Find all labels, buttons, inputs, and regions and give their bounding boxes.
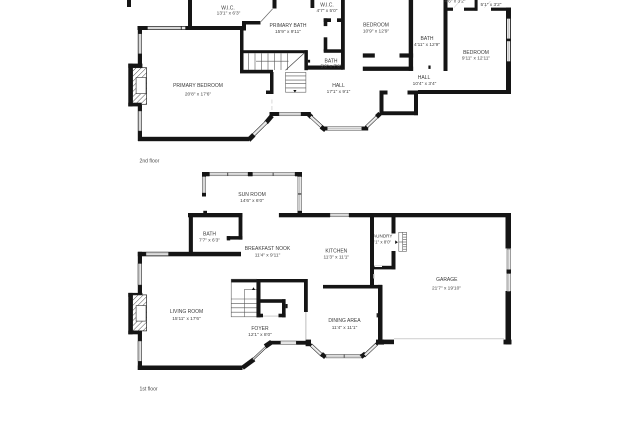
svg-text:HALL: HALL xyxy=(332,83,345,89)
svg-text:5'1" x 3'2": 5'1" x 3'2" xyxy=(481,2,502,8)
svg-text:9'11" x 12'11": 9'11" x 12'11" xyxy=(462,56,491,62)
svg-text:SUN ROOM: SUN ROOM xyxy=(238,192,266,198)
svg-text:GARAGE: GARAGE xyxy=(436,277,458,283)
svg-text:15'9" x 9'11": 15'9" x 9'11" xyxy=(275,29,301,35)
svg-text:LIVING ROOM: LIVING ROOM xyxy=(170,309,203,315)
svg-text:15'11" x 17'6": 15'11" x 17'6" xyxy=(172,316,201,322)
svg-text:17'1" x 9'1": 17'1" x 9'1" xyxy=(327,89,351,95)
svg-text:BREAKFAST NOOK: BREAKFAST NOOK xyxy=(245,246,291,252)
svg-text:BATH: BATH xyxy=(203,231,216,237)
svg-text:10'4" x 3'4": 10'4" x 3'4" xyxy=(413,81,437,87)
svg-text:KITCHEN: KITCHEN xyxy=(325,248,347,254)
svg-text:1st floor: 1st floor xyxy=(140,387,158,393)
svg-text:W.I.C.: W.I.C. xyxy=(320,2,334,8)
svg-text:PRIMARY BEDROOM: PRIMARY BEDROOM xyxy=(173,83,223,89)
svg-text:BATH: BATH xyxy=(421,36,434,42)
svg-text:12'1" x 8'0": 12'1" x 8'0" xyxy=(248,332,272,338)
svg-text:14'6" x 6'0": 14'6" x 6'0" xyxy=(240,198,264,204)
svg-text:DINING AREA: DINING AREA xyxy=(328,318,361,324)
svg-text:2nd floor: 2nd floor xyxy=(140,158,160,164)
svg-text:3'1" x 8'0": 3'1" x 8'0" xyxy=(372,239,392,244)
svg-text:HALL: HALL xyxy=(418,75,431,81)
svg-text:11'3" x 11'1": 11'3" x 11'1" xyxy=(323,255,349,261)
svg-text:BEDROOM: BEDROOM xyxy=(463,50,489,56)
svg-text:7'7" x 6'3": 7'7" x 6'3" xyxy=(199,237,220,243)
svg-text:4'7" x 5'0": 4'7" x 5'0" xyxy=(317,8,338,14)
svg-text:5'6" x 7'6": 5'6" x 7'6" xyxy=(321,63,342,69)
svg-text:21'7" x 19'10": 21'7" x 19'10" xyxy=(432,286,461,292)
svg-text:4'11" x 12'9": 4'11" x 12'9" xyxy=(414,42,440,48)
svg-text:BEDROOM: BEDROOM xyxy=(363,22,389,28)
svg-text:13'1" x 6'3": 13'1" x 6'3" xyxy=(217,10,241,16)
svg-text:11'4" x 11'1": 11'4" x 11'1" xyxy=(332,325,358,331)
svg-text:20'8" x 17'6": 20'8" x 17'6" xyxy=(185,92,212,98)
svg-text:PRIMARY BATH: PRIMARY BATH xyxy=(270,23,307,29)
svg-text:4'6" x 3'2": 4'6" x 3'2" xyxy=(445,0,466,5)
svg-text:FOYER: FOYER xyxy=(251,326,269,332)
svg-text:10'9" x 12'9": 10'9" x 12'9" xyxy=(363,29,390,35)
svg-text:11'4" x 9'11": 11'4" x 9'11" xyxy=(255,252,281,258)
